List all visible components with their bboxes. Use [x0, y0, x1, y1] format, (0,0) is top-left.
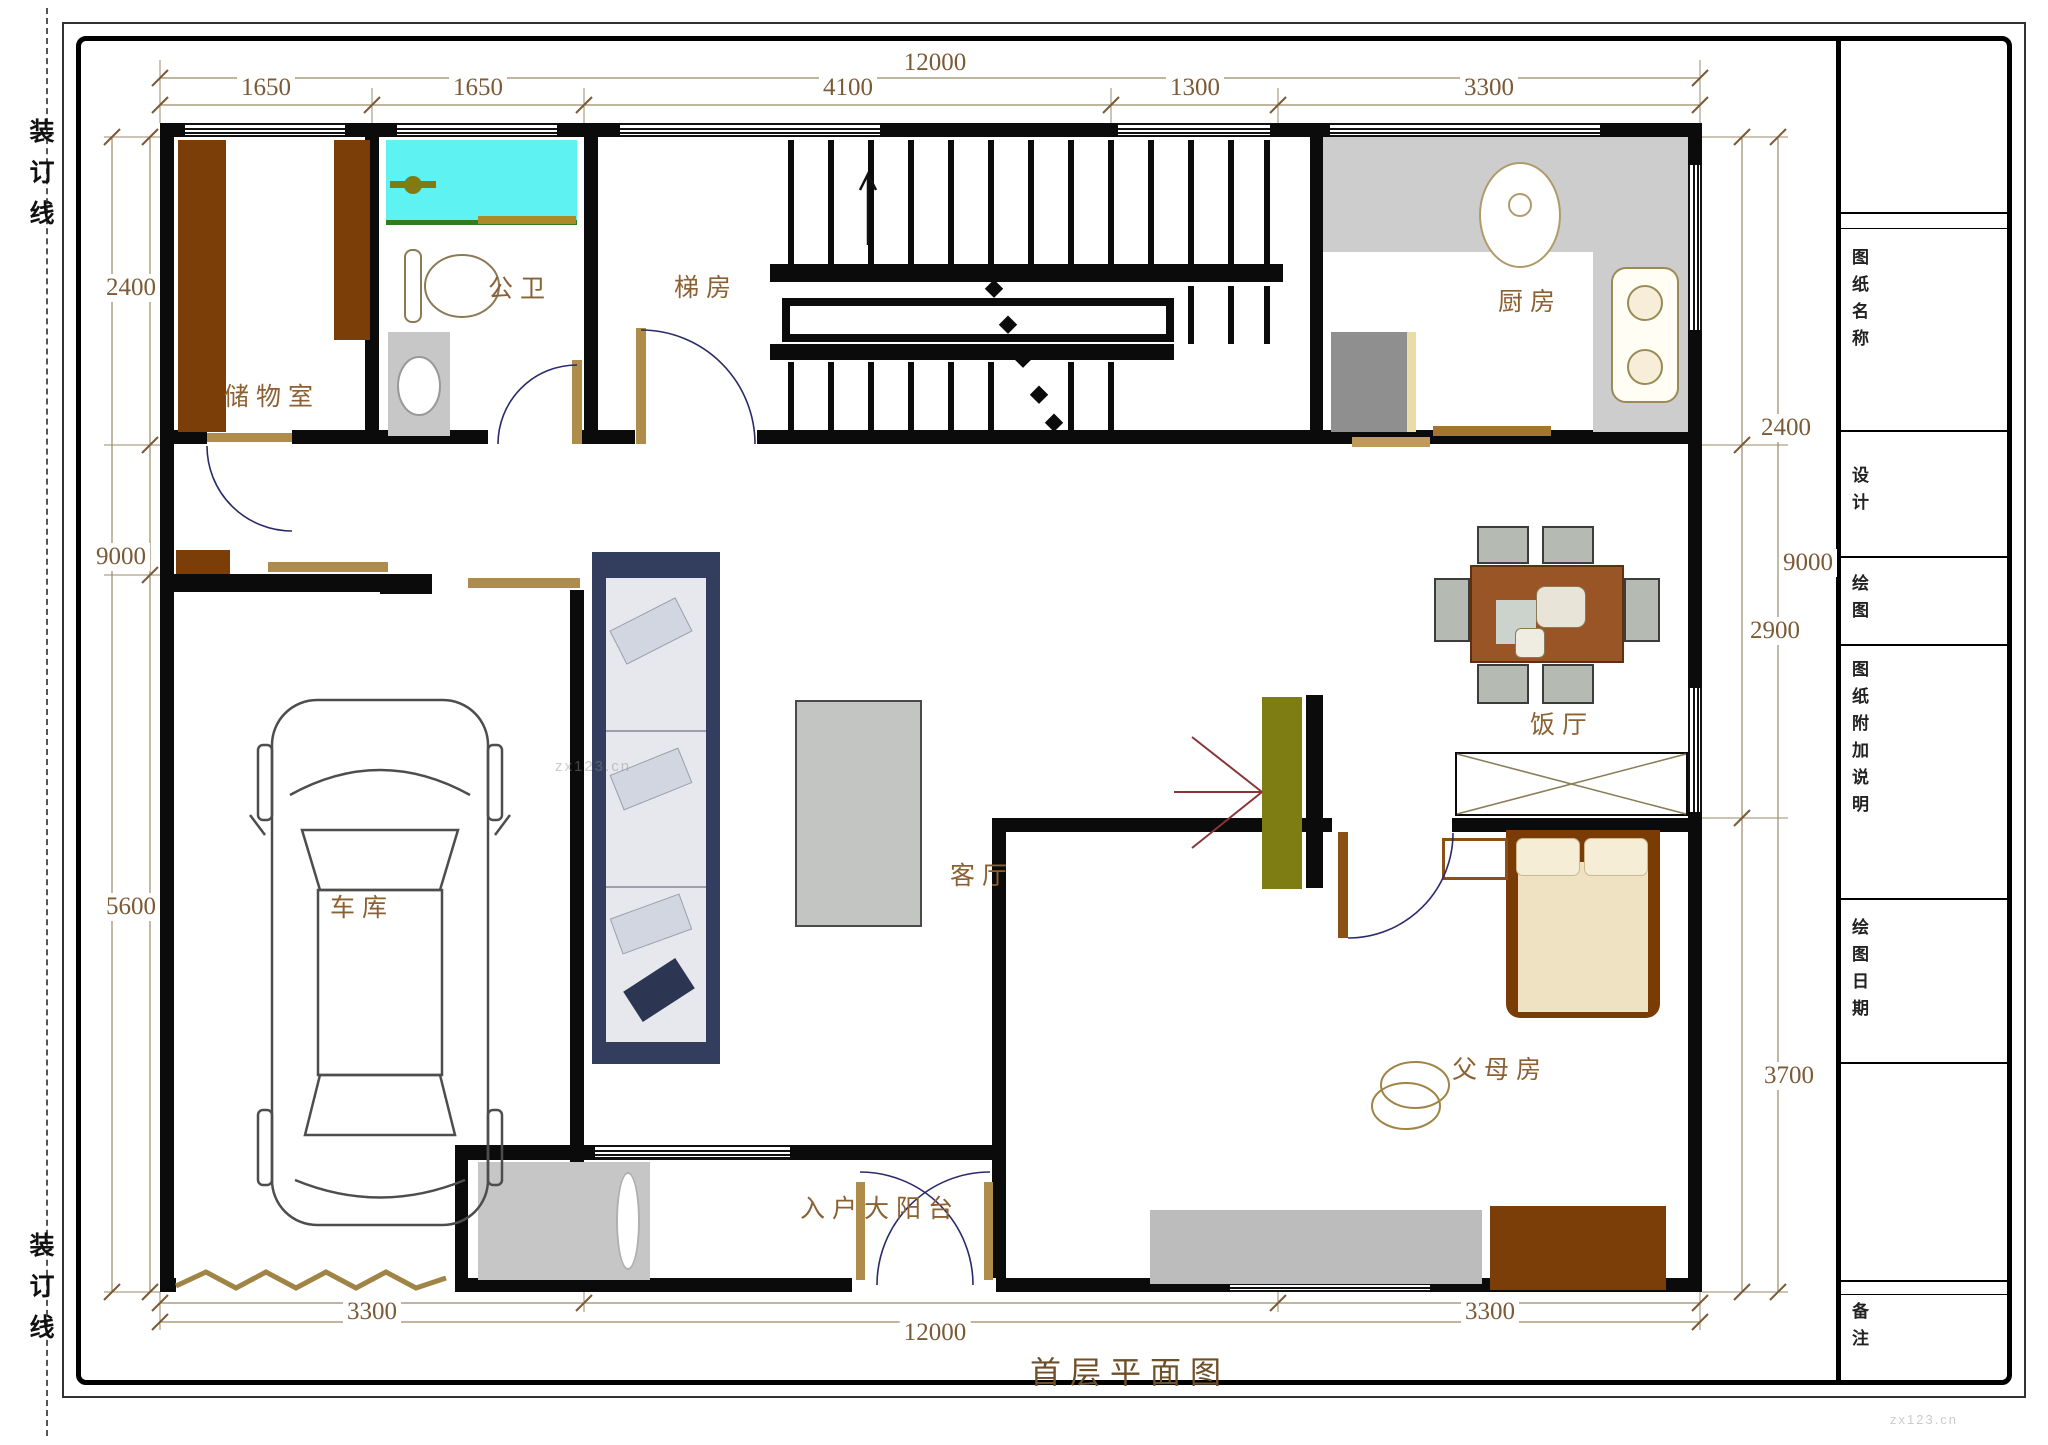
- door-arc-bathroom: [498, 365, 577, 444]
- room-label-bathroom: 公卫: [488, 269, 552, 305]
- toilet: [405, 250, 499, 322]
- dim-top-1300: 1300: [1166, 74, 1224, 102]
- dim-bottom-3300-right: 3300: [1461, 1298, 1519, 1326]
- dim-top-4100: 4100: [819, 74, 877, 102]
- garage-door-zigzag: [176, 1272, 446, 1288]
- dim-right-2900: 2900: [1746, 617, 1804, 645]
- dim-right-2400: 2400: [1757, 414, 1815, 442]
- stair-break-line: [985, 280, 1063, 432]
- room-label-parents: 父母房: [1452, 1050, 1548, 1086]
- dim-left-5600: 5600: [102, 893, 160, 921]
- bath-faucet: [390, 176, 436, 194]
- door-arc-parents: [1348, 833, 1453, 938]
- dim-top-3300: 3300: [1460, 74, 1518, 102]
- room-label-storage: 储物室: [224, 377, 320, 413]
- floor-plan-sheet: { "sheet": { "binding_label_top": "装订线",…: [0, 0, 2048, 1445]
- room-label-kitchen: 厨房: [1498, 282, 1562, 318]
- dim-top-1650a: 1650: [237, 74, 295, 102]
- dim-right-3700: 3700: [1760, 1062, 1818, 1090]
- ottoman-rings: [1372, 1062, 1449, 1129]
- room-label-living: 客厅: [950, 856, 1014, 892]
- dim-left-9000: 9000: [92, 543, 150, 571]
- room-label-balcony: 入户大阳台: [800, 1189, 960, 1225]
- room-label-dining: 饭厅: [1530, 705, 1594, 741]
- entry-arrow: [1174, 737, 1262, 848]
- dim-bottom-12000: 12000: [900, 1319, 971, 1347]
- cabinet-cross: [1457, 754, 1686, 814]
- dim-bottom-3300-left: 3300: [343, 1298, 401, 1326]
- washer-drum: [398, 357, 440, 415]
- door-arc-storage: [207, 446, 292, 531]
- room-label-stair: 梯房: [674, 268, 738, 304]
- room-label-garage: 车库: [330, 888, 394, 924]
- kitchen-stove: [1612, 268, 1678, 402]
- watermark-center: zx123.cn: [555, 758, 631, 775]
- dim-left-2400: 2400: [102, 274, 160, 302]
- plan-linework: [0, 0, 2048, 1445]
- dim-right-9000: 9000: [1779, 549, 1837, 577]
- plan-title: 首层平面图: [1030, 1348, 1230, 1393]
- door-arc-stair: [641, 330, 755, 444]
- car: [250, 700, 510, 1225]
- stair-up-arrow: [860, 174, 876, 245]
- kitchen-sink: [1480, 163, 1560, 267]
- dim-top-total: 12000: [900, 49, 971, 77]
- dim-top-1650b: 1650: [449, 74, 507, 102]
- watermark-corner: zx123.cn: [1890, 1412, 1958, 1427]
